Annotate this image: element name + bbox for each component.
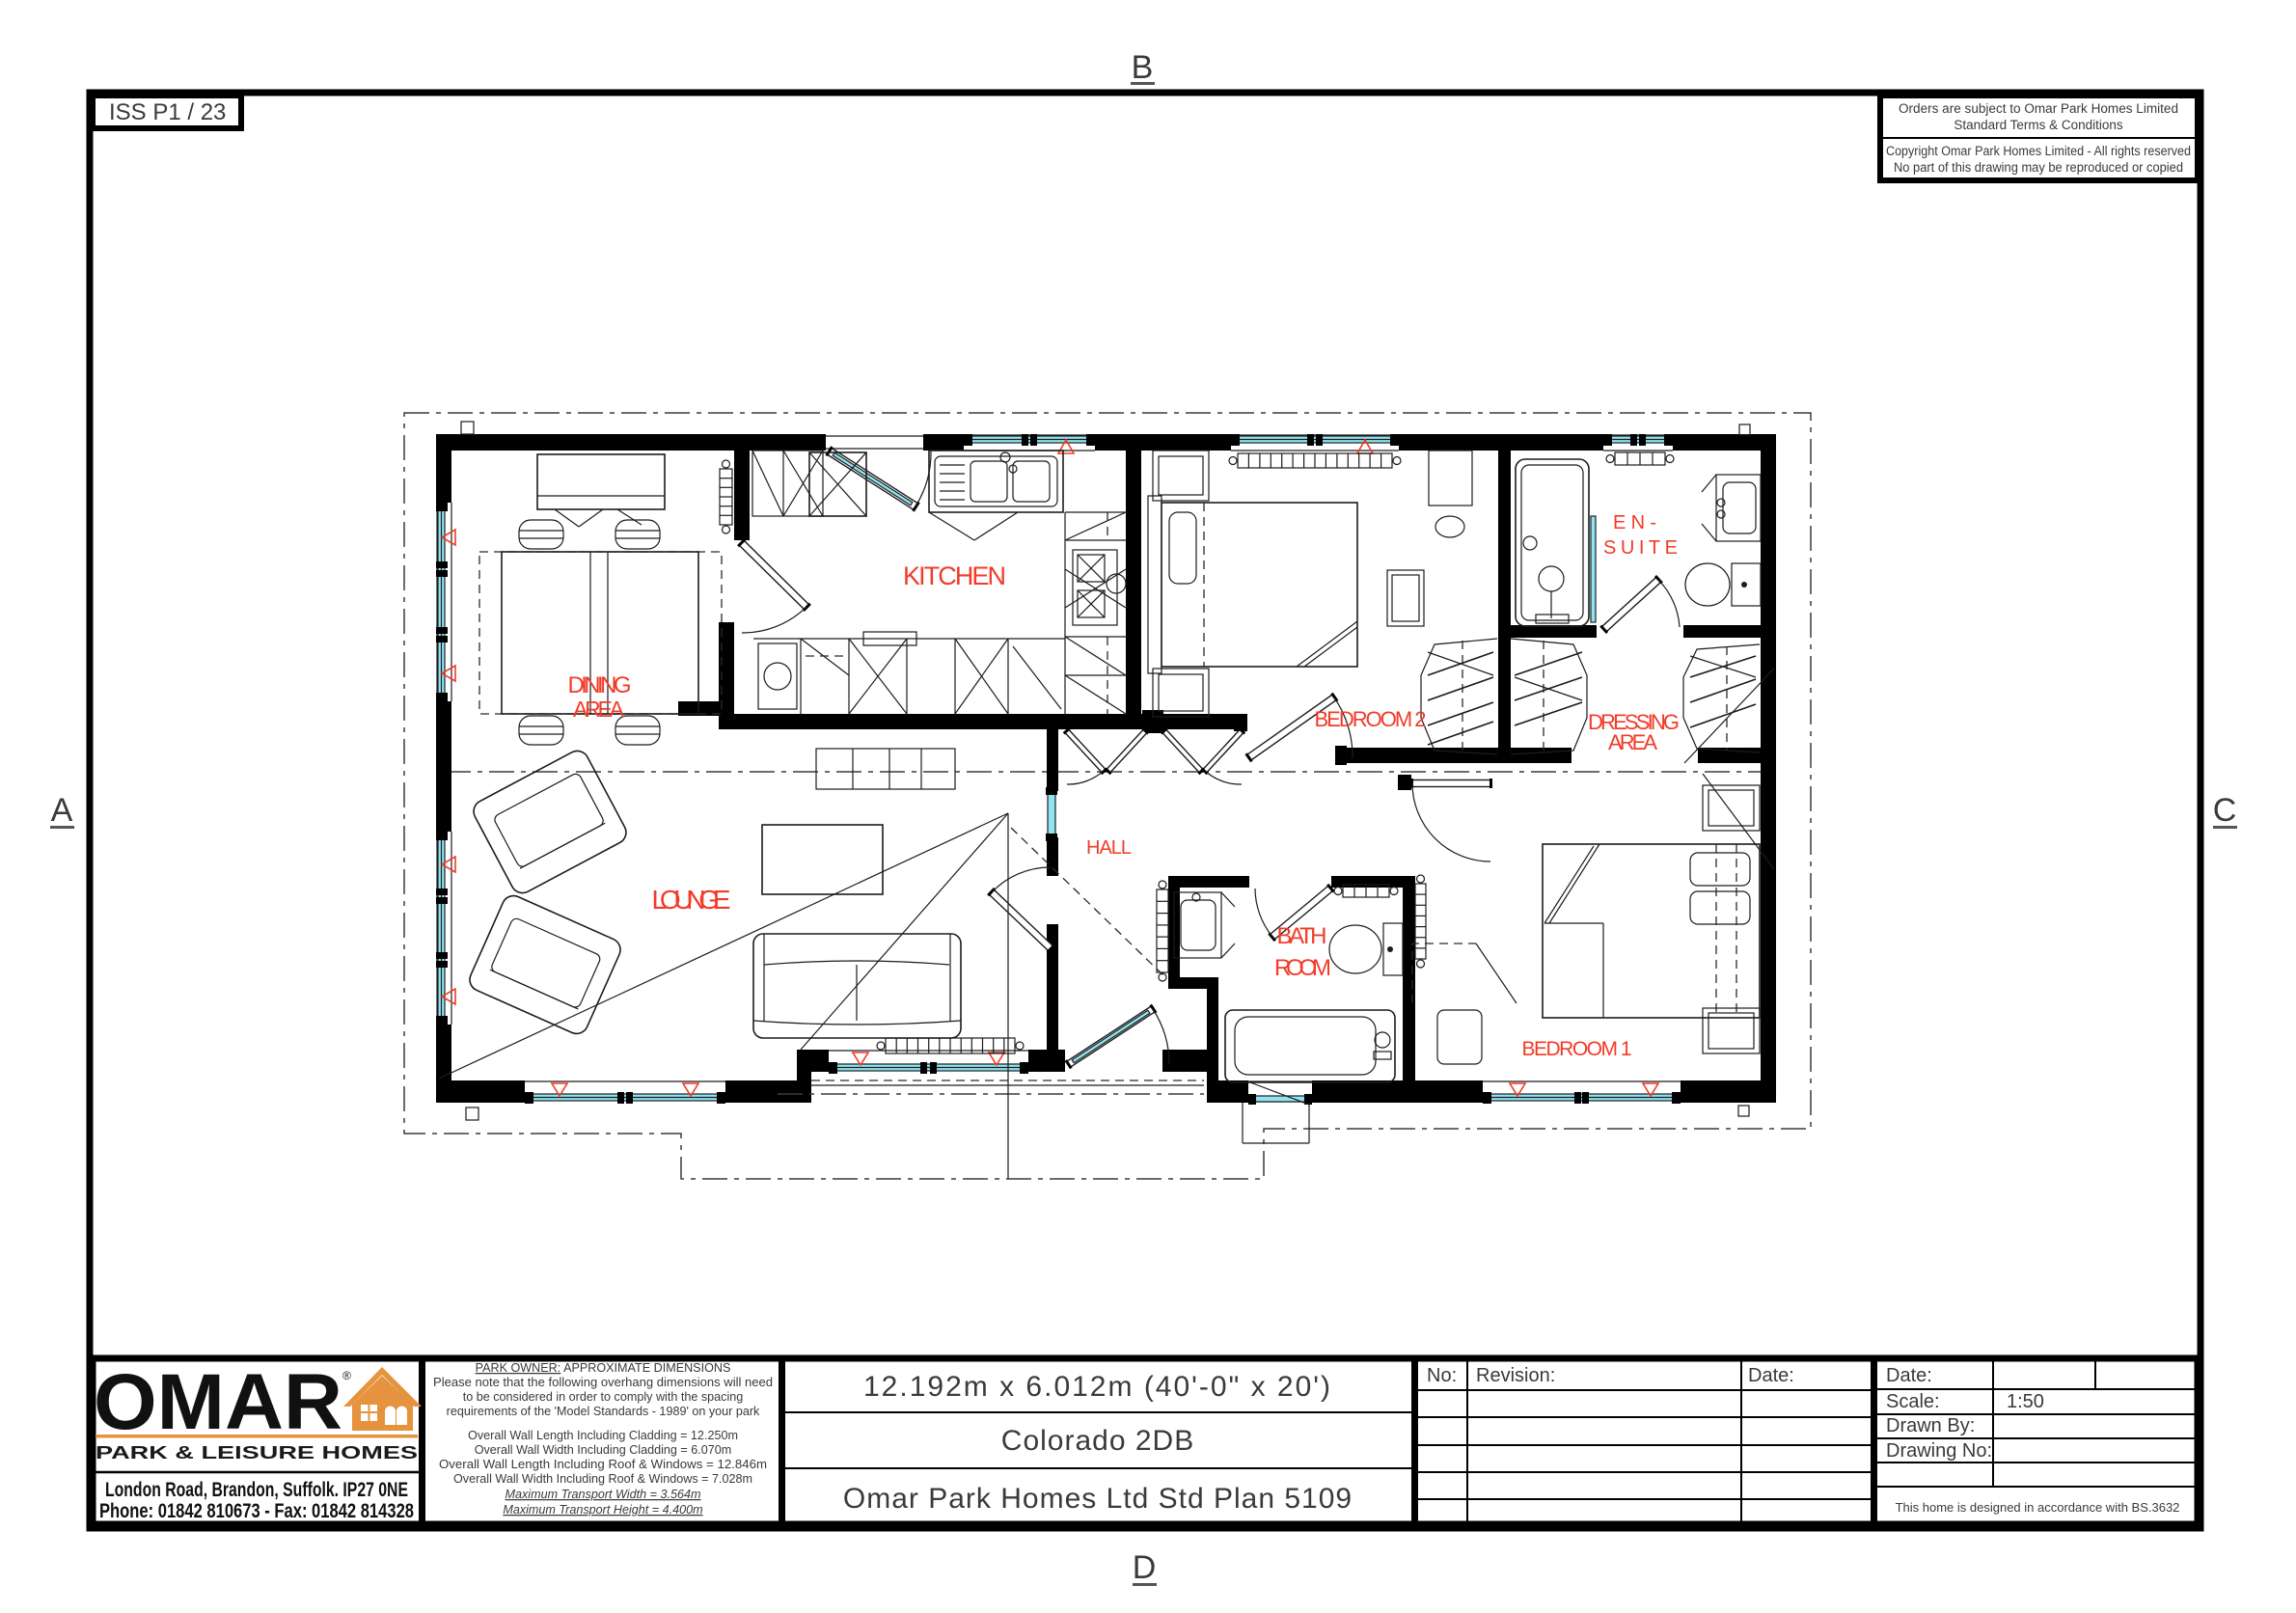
svg-text:Standard Terms & Conditions: Standard Terms & Conditions [1954,118,2123,132]
svg-text:Maximum Transport Width = 3.56: Maximum Transport Width = 3.564m [506,1488,701,1501]
svg-text:Copyright Omar Park Homes Limi: Copyright Omar Park Homes Limited - All … [1886,144,2191,158]
svg-text:Overall Wall Length Including: Overall Wall Length Including Cladding =… [468,1429,738,1442]
svg-text:No part of this drawing may be: No part of this drawing may be reproduce… [1894,160,2183,175]
svg-text:SUITE: SUITE [1603,537,1679,559]
svg-text:Date:: Date: [1748,1365,1794,1386]
svg-text:Omar Park Homes Ltd Std Plan 5: Omar Park Homes Ltd Std Plan 5109 [843,1483,1353,1515]
svg-text:Maximum Transport Height = 4.4: Maximum Transport Height = 4.400m [503,1503,702,1517]
svg-text:to be considered in order to c: to be considered in order to comply with… [463,1390,744,1404]
svg-text:BEDROOM 2: BEDROOM 2 [1315,707,1428,731]
svg-text:AREA: AREA [573,697,625,722]
svg-text:Phone: 01842 810673 - Fax: 018: Phone: 01842 810673 - Fax: 01842 814328 [99,1499,414,1522]
svg-text:Colorado 2DB: Colorado 2DB [1001,1425,1194,1457]
svg-text:Scale:: Scale: [1886,1391,1940,1412]
svg-text:A: A [51,792,73,829]
svg-text:KITCHEN: KITCHEN [903,561,1007,590]
svg-text:This home is designed in accor: This home is designed in accordance with… [1896,1500,2180,1515]
svg-text:AREA: AREA [1608,730,1658,754]
svg-text:®: ® [342,1369,351,1382]
svg-text:Orders are subject to Omar Par: Orders are subject to Omar Park Homes Li… [1899,101,2178,116]
svg-text:DINING: DINING [568,672,633,698]
svg-text:Overall Wall Width Including C: Overall Wall Width Including Cladding = … [475,1443,732,1457]
svg-text:B: B [1132,49,1154,86]
svg-text:Drawing No:: Drawing No: [1886,1440,1992,1462]
svg-text:Revision:: Revision: [1476,1365,1555,1386]
svg-text:Overall Wall Length Including: Overall Wall Length Including Roof & Win… [439,1458,767,1471]
svg-text:Overall Wall Width Including R: Overall Wall Width Including Roof & Wind… [453,1472,752,1486]
svg-text:ISS P1 / 23: ISS P1 / 23 [109,99,226,125]
svg-text:Please note that the following: Please note that the following overhang … [433,1376,773,1389]
svg-text:BEDROOM 1: BEDROOM 1 [1522,1038,1633,1060]
svg-text:Date:: Date: [1886,1365,1932,1386]
svg-text:London Road, Brandon, Suffolk.: London Road, Brandon, Suffolk. IP27 0NE [105,1478,408,1501]
svg-text:HALL: HALL [1086,837,1133,859]
svg-text:PARK & LEISURE HOMES: PARK & LEISURE HOMES [96,1443,418,1463]
svg-text:BATH: BATH [1277,923,1328,949]
svg-text:No:: No: [1427,1365,1457,1386]
svg-text:EN-: EN- [1613,512,1657,533]
svg-text:D: D [1133,1549,1157,1586]
svg-text:OMAR: OMAR [94,1358,342,1446]
svg-text:12.192m x 6.012m (40'-0" x 20': 12.192m x 6.012m (40'-0" x 20') [863,1371,1332,1403]
svg-text:Drawn By:: Drawn By: [1886,1415,1975,1436]
svg-text:ROOM: ROOM [1274,955,1332,981]
svg-text:requirements of the 'Model St: requirements of the 'Model Standards - 1… [447,1405,760,1418]
svg-text:PARK OWNER: APPROXIMATE DIMENS: PARK OWNER: APPROXIMATE DIMENSIONS [476,1361,731,1375]
svg-text:C: C [2213,792,2237,829]
svg-text:LOUNGE: LOUNGE [652,885,732,915]
svg-text:1:50: 1:50 [2007,1391,2044,1412]
